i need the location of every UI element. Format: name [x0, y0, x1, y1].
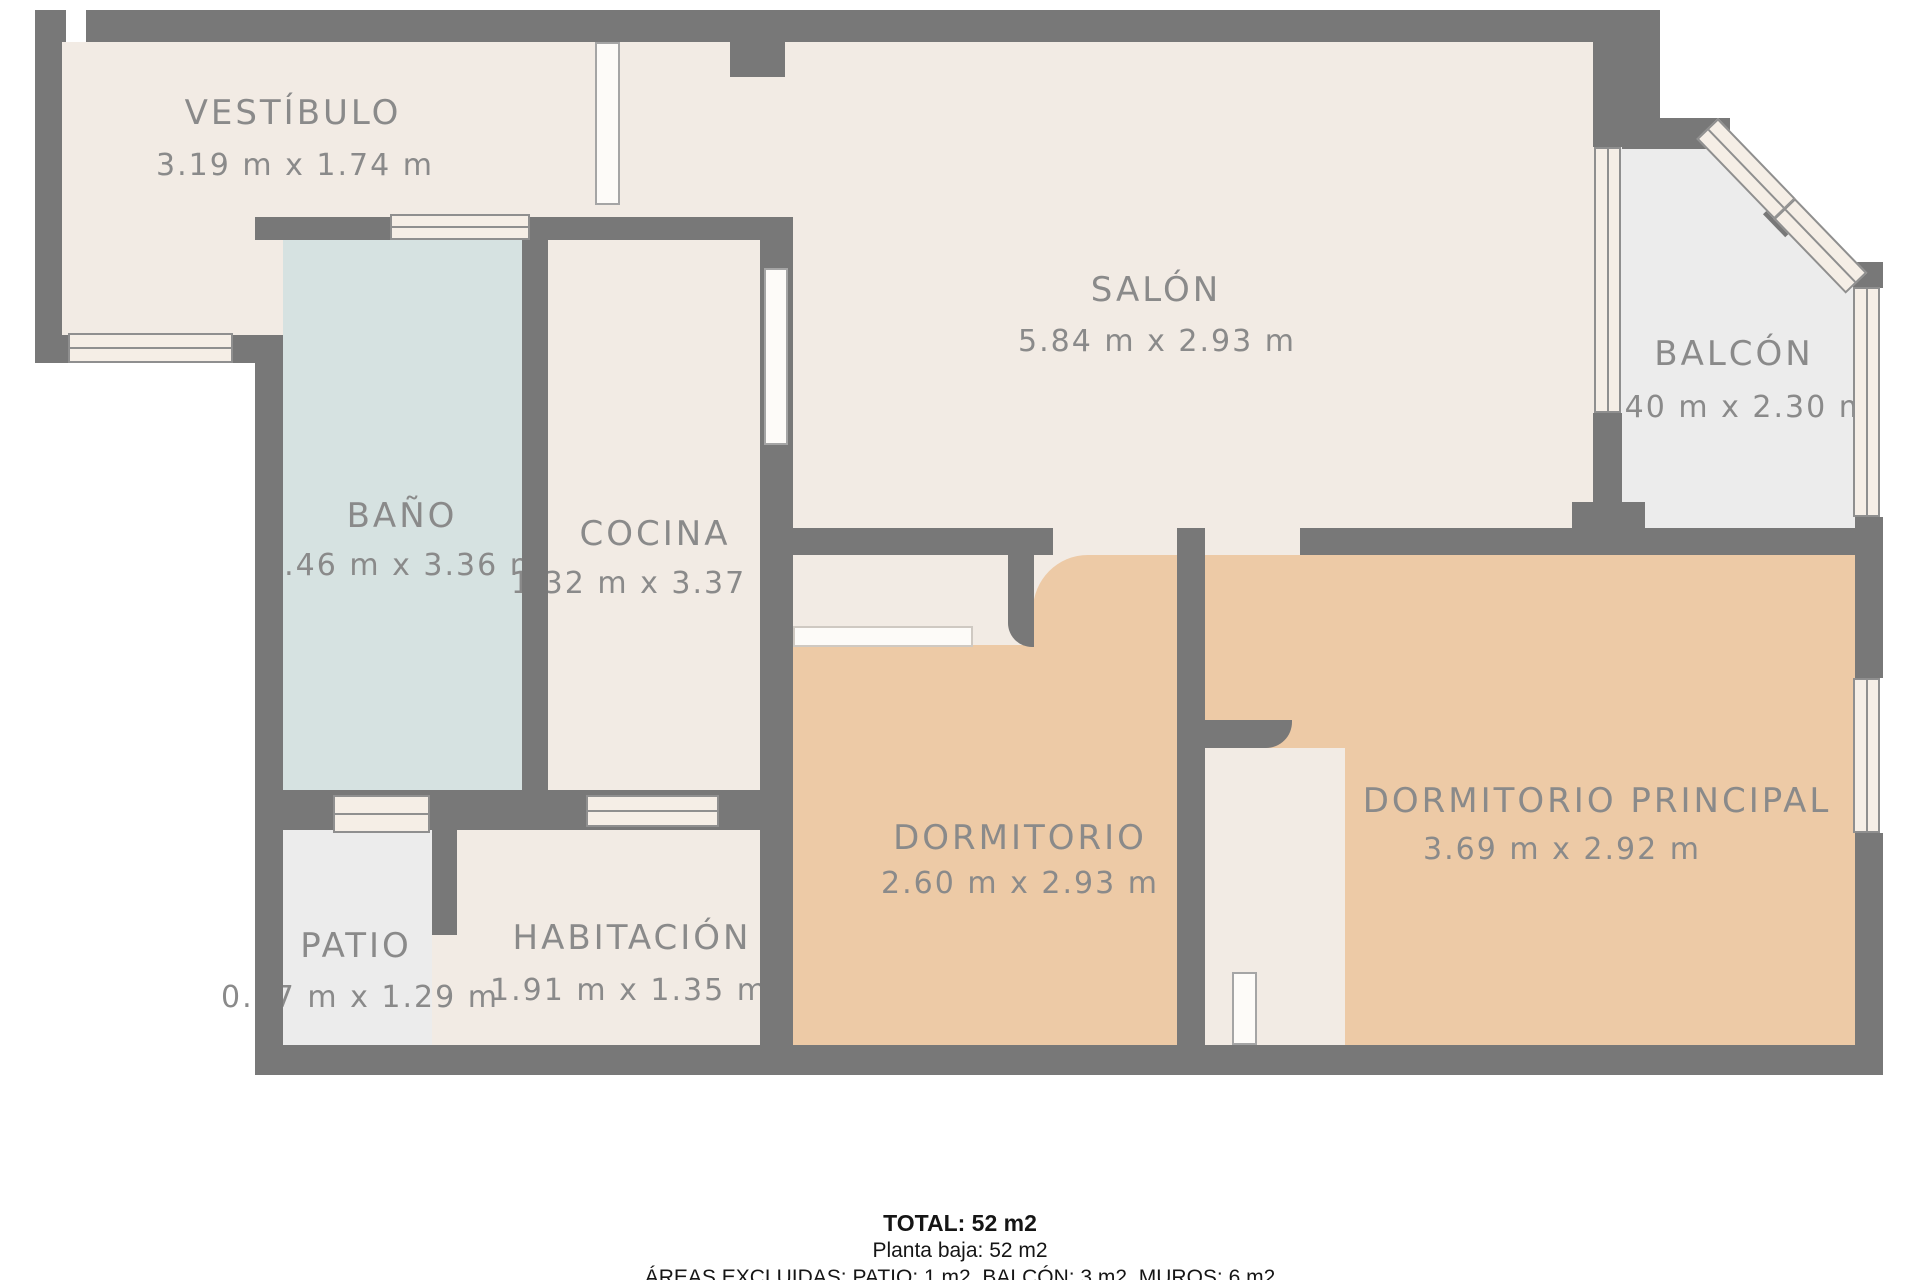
dormitorio-principal-dimensions: 3.69 m x 2.92 m	[1423, 832, 1701, 867]
wall-salon-east-lower	[1593, 413, 1622, 508]
patio-label: PATIO	[300, 926, 412, 966]
summary-floor: Planta baja: 52 m2	[0, 1237, 1920, 1264]
vestibulo-label: VESTÍBULO	[185, 93, 402, 133]
summary-total: TOTAL: 52 m2	[0, 1210, 1920, 1237]
cocina-label: COCINA	[580, 514, 731, 554]
wall-salon-south-west	[763, 528, 1053, 555]
wall-dormp-east-lower	[1855, 833, 1883, 1075]
habitacion-window	[586, 795, 719, 827]
dormitorio-dimensions: 2.60 m x 2.93 m	[881, 866, 1159, 901]
dormitorio-door-leaf	[793, 626, 973, 647]
balcon-dimensions: 1.40 m x 2.30 m	[1592, 390, 1870, 425]
vestibulo-window	[68, 333, 233, 363]
patio-window	[333, 795, 430, 833]
wall-hall-curved	[1008, 555, 1034, 647]
balcon-east-window	[1853, 287, 1880, 517]
wall-top-left-notch	[66, 10, 86, 42]
wall-top-stub	[730, 42, 785, 77]
wall-balcon-se-block	[1855, 517, 1883, 555]
wall-patio-east	[432, 830, 457, 935]
salon-label: SALÓN	[1091, 270, 1221, 310]
cocina-dimensions: 1.32 m x 3.37 m	[511, 566, 789, 601]
salon-dimensions: 5.84 m x 2.93 m	[1018, 324, 1296, 359]
wall-nook-stub	[1205, 720, 1292, 748]
habitacion-dimensions: 1.91 m x 1.35 m	[490, 973, 768, 1008]
wall-left-lower	[255, 335, 283, 1075]
cocina-door-leaf	[764, 268, 788, 445]
summary-excluded: ÁREAS EXCLUIDAS: PATIO: 1 m2, BALCÓN: 3 …	[0, 1264, 1920, 1280]
habitacion-label: HABITACIÓN	[513, 918, 752, 958]
wall-salon-south-east	[1300, 528, 1857, 555]
vestibulo-dimensions: 3.19 m x 1.74 m	[156, 148, 434, 183]
dormitorio-principal-label: DORMITORIO PRINCIPAL	[1363, 781, 1832, 821]
summary-footer: TOTAL: 52 m2 Planta baja: 52 m2 ÁREAS EX…	[0, 1210, 1920, 1280]
bano-dimensions: 1.46 m x 3.36 m	[263, 548, 541, 583]
wall-dormp-east-upper	[1855, 555, 1883, 678]
wall-divider-dormitorios	[1177, 528, 1205, 1075]
dormitorio-floor-extension	[1033, 555, 1177, 647]
wall-salon-east-upper	[1593, 42, 1622, 147]
wall-left-upper	[35, 10, 62, 363]
dormp-east-window	[1853, 678, 1880, 833]
dormitorio-label: DORMITORIO	[893, 818, 1147, 858]
balcon-label: BALCÓN	[1654, 334, 1813, 374]
bano-label: BAÑO	[347, 496, 458, 536]
balcon-door-leaf	[1594, 147, 1621, 413]
bano-top-window	[390, 214, 530, 240]
nook-door-leaf	[1232, 972, 1257, 1045]
floor-plan: VESTÍBULO 3.19 m x 1.74 m BAÑO 1.46 m x …	[0, 0, 1920, 1280]
wall-top	[35, 10, 1660, 42]
wall-bottom	[255, 1045, 1883, 1075]
dormitorio-principal-entry-nook	[1205, 748, 1345, 1045]
entry-door-leaf	[595, 42, 620, 205]
wall-bano-cocina	[522, 240, 548, 790]
